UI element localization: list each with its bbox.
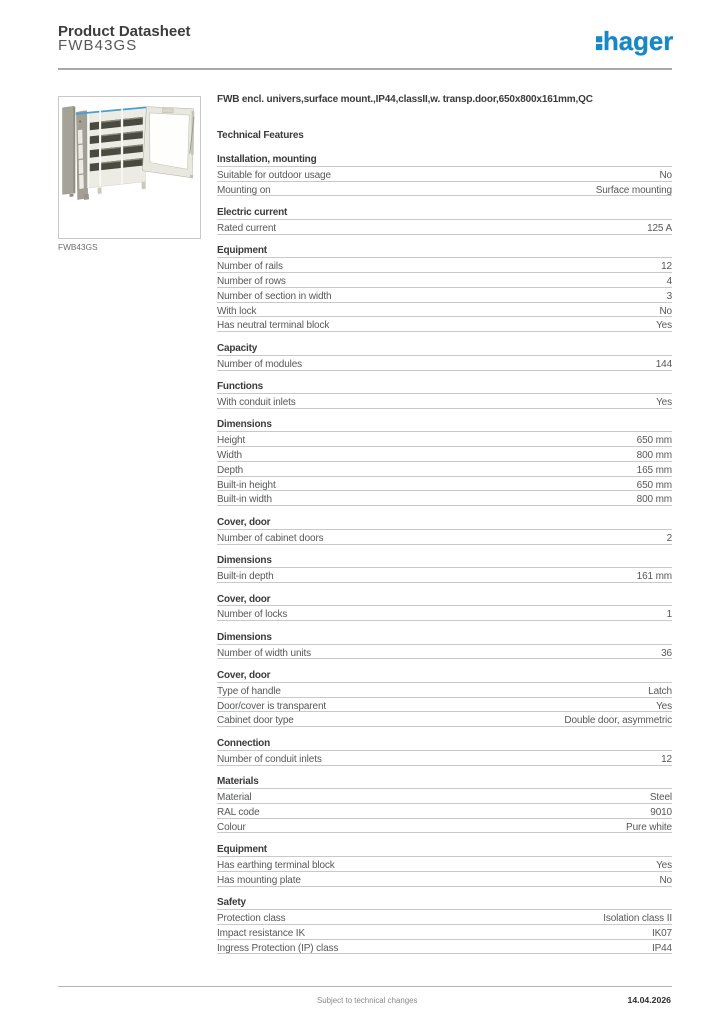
svg-text:hager: hager: [603, 28, 673, 56]
